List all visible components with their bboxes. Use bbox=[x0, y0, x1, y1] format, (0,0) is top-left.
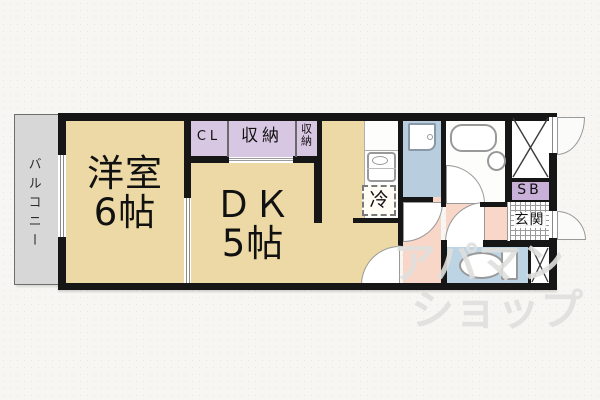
wall-storage-small-right bbox=[317, 121, 322, 157]
xbox-top-cross-icon bbox=[512, 117, 549, 178]
western-room-label: 洋室 6帖 bbox=[66, 155, 184, 233]
wall-top bbox=[58, 113, 557, 121]
wall-kitchen-right bbox=[398, 113, 403, 247]
kitchen-faucet bbox=[372, 156, 388, 165]
wall-kitchen-nook bbox=[314, 157, 322, 223]
watermark-line2: ショップ bbox=[411, 288, 583, 335]
western-room-name: 洋室 bbox=[66, 155, 184, 194]
wall-shoebox-bottom bbox=[510, 200, 549, 202]
dk-size: 5帖 bbox=[198, 225, 308, 264]
refrigerator-label: 冷 bbox=[369, 191, 388, 211]
wash-basin-drain bbox=[427, 134, 433, 140]
opening-storage-door bbox=[549, 117, 557, 153]
kitchen-counter-line bbox=[364, 150, 398, 151]
shoebox-label: SB bbox=[510, 183, 549, 198]
apaman-shop-watermark: アパマン ショップ bbox=[393, 241, 583, 335]
wall-washroom-bottom bbox=[398, 197, 433, 202]
opening-entrance-door bbox=[549, 211, 557, 238]
storage-door-leaf bbox=[552, 117, 553, 153]
floorplan-screenshot: { "rooms": { "balcony": "バルコニー", "wester… bbox=[0, 0, 600, 400]
balcony-area: バルコニー bbox=[14, 114, 59, 285]
wall-left-lower bbox=[58, 237, 66, 283]
partition-storage-storage bbox=[295, 121, 297, 157]
wall-kitchen-stub bbox=[353, 218, 398, 223]
storage-large-label: 収納 bbox=[229, 128, 295, 146]
storage-small-label: 収納 bbox=[300, 123, 312, 147]
wall-washroom-bath bbox=[441, 121, 446, 207]
watermark-line1: アパマン bbox=[393, 241, 583, 288]
balcony-label: バルコニー bbox=[26, 157, 40, 252]
entrance-door-leaf bbox=[552, 211, 553, 238]
wall-bath-bottom bbox=[480, 202, 510, 207]
closet-cl-label: CL bbox=[191, 130, 227, 144]
closet-sliding-front bbox=[229, 157, 293, 163]
entrance-label-text: 玄関 bbox=[514, 212, 546, 228]
refrigerator-box: 冷 bbox=[362, 185, 396, 216]
wall-closet-bottom-left bbox=[184, 156, 229, 163]
bath-stool-circle bbox=[487, 151, 506, 171]
dk-name: ＤＫ bbox=[198, 186, 308, 225]
window-west-balcony bbox=[58, 155, 66, 237]
sliding-door-west-dk bbox=[184, 198, 191, 283]
bathtub bbox=[450, 124, 497, 152]
entrance-label: 玄関 bbox=[510, 213, 549, 228]
sink-divider-line bbox=[367, 168, 396, 169]
wall-right-mid bbox=[549, 153, 557, 211]
western-room-size: 6帖 bbox=[66, 194, 184, 233]
wall-left-upper bbox=[58, 121, 66, 155]
dk-label: ＤＫ 5帖 bbox=[198, 186, 308, 264]
